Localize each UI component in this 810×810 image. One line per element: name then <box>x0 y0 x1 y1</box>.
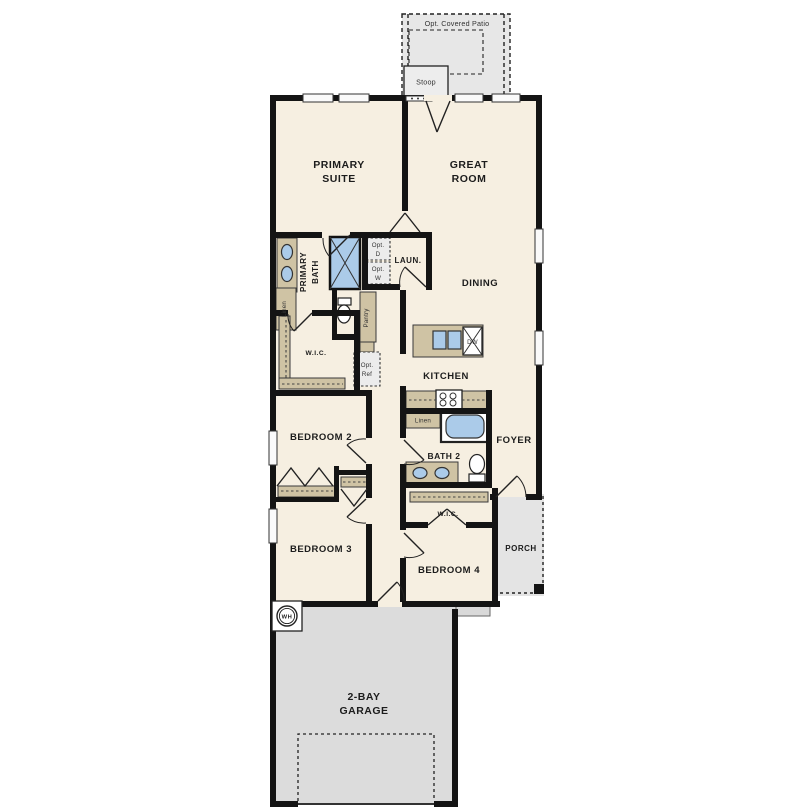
wall-suite-greatroom-divider <box>402 95 408 211</box>
sidelight-dot-2 <box>417 98 419 100</box>
wall-bath2-top <box>402 408 490 414</box>
wall-bath2-bottom <box>406 482 492 488</box>
garage-door-threshold <box>298 803 434 805</box>
bath2-label: BATH 2 <box>427 451 460 461</box>
floorplan-canvas: Opt. Covered Patio Stoop 2-BAY GARAGE PO… <box>0 0 810 810</box>
bedroom4-label: BEDROOM 4 <box>418 565 480 576</box>
primary-bath-sink-1 <box>282 245 293 260</box>
porch-post <box>534 584 544 594</box>
bathtub <box>446 415 484 438</box>
primary-bath-sink-2 <box>282 267 293 282</box>
wall-bed4-right <box>492 488 498 606</box>
foyer-label: FOYER <box>496 435 531 446</box>
great-room-label-line2: ROOM <box>452 173 487 185</box>
dining-label: DINING <box>462 278 498 289</box>
wall-wic4-bottom-b <box>466 522 492 528</box>
window-dining-2 <box>535 331 543 365</box>
wall-closet-stub <box>334 466 339 502</box>
wall-hall-right-low <box>400 558 406 602</box>
range <box>436 390 462 409</box>
primary-suite-label-line2: SUITE <box>322 173 355 185</box>
laundry-label: LAUN. <box>395 256 422 265</box>
window-dining-1 <box>535 229 543 263</box>
garage-label-line1: 2-BAY <box>347 691 380 703</box>
wall-bed2-right-b <box>366 464 372 498</box>
kitchen-label: KITCHEN <box>423 371 469 382</box>
wall-bed4-bottom <box>402 601 500 607</box>
wall-laundry-bottom <box>362 284 400 290</box>
pantry-label: Pantry <box>363 308 370 328</box>
wall-bed3-closet-top <box>339 470 372 475</box>
patio-label: Opt. Covered Patio <box>425 19 490 28</box>
wall-wic-top-b <box>312 310 354 316</box>
wall-foyer-bottom-a <box>490 494 496 500</box>
bedroom2-label: BEDROOM 2 <box>290 432 352 443</box>
rear-step <box>456 606 490 616</box>
kitchen-sink-1 <box>433 331 446 349</box>
bath2-sink-1 <box>413 468 427 479</box>
water-heater-label: WH <box>282 615 293 621</box>
wall-hall-right-mid <box>400 464 406 530</box>
dishwasher-label: DW <box>467 339 478 346</box>
wall-bed3-right <box>366 524 372 602</box>
pantry-connector <box>360 342 374 352</box>
opt-washer-label-line2: W <box>375 275 381 282</box>
linen-bath2-label: Linen <box>415 418 431 425</box>
wall-suite-bottom-a <box>270 232 322 238</box>
wall-foyer-bottom-b <box>526 494 542 500</box>
wic-bed4-label: W.I.C. <box>438 511 459 518</box>
garage-floor <box>273 603 458 803</box>
wall-closet-divider <box>270 497 338 502</box>
primary-bath-label-line1: PRIMARY <box>299 252 308 292</box>
wic-primary-label: W.I.C. <box>306 350 327 357</box>
porch-label: PORCH <box>505 544 536 553</box>
primary-bath-label-line2: BATH <box>311 260 320 284</box>
wall-foyer-left <box>486 390 492 488</box>
toilet1-tank <box>338 298 351 305</box>
wall-laundry-right <box>426 232 432 290</box>
sidelight-dot-1 <box>411 98 413 100</box>
linen-primary-label: Linen <box>281 301 288 317</box>
wall-laundry-left <box>362 232 368 290</box>
opt-dryer-label-line1: Opt. <box>372 242 385 249</box>
opt-ref-label-line2: Ref <box>362 371 372 378</box>
wall-kitchen-west-a <box>400 290 406 354</box>
wall-garage-right <box>452 609 458 807</box>
wall-wic4-bottom-a <box>402 522 428 528</box>
wall-garage-bottom-left <box>270 801 298 807</box>
opt-dryer-label-line2: D <box>376 251 381 258</box>
bath2-sink-2 <box>435 468 449 479</box>
window-suite-2 <box>339 94 369 102</box>
window-suite-1 <box>303 94 333 102</box>
wall-right <box>536 95 542 497</box>
primary-suite-label-line1: PRIMARY <box>313 159 365 171</box>
bedroom3-label: BEDROOM 3 <box>290 544 352 555</box>
opt-ref-label-line1: Opt. <box>361 362 374 369</box>
window-greatroom-1 <box>455 94 483 102</box>
stoop-label: Stoop <box>416 78 436 87</box>
window-bed2 <box>269 431 277 465</box>
wall-wic-right <box>354 310 360 396</box>
floorplan-svg: Opt. Covered Patio Stoop 2-BAY GARAGE PO… <box>0 0 810 810</box>
opt-washer-label-line1: Opt. <box>372 266 385 273</box>
entry-door-gap <box>424 95 452 101</box>
wall-garage-bottom-right <box>434 801 458 807</box>
window-greatroom-2 <box>492 94 520 102</box>
toilet2-tank <box>469 474 485 482</box>
great-room-label-line1: GREAT <box>450 159 489 171</box>
wall-bed2-right-a <box>366 390 372 438</box>
kitchen-sink-2 <box>448 331 461 349</box>
wic-primary-shelf-left <box>279 316 290 388</box>
wall-bed2-top <box>270 390 372 396</box>
toilet2-bowl <box>470 455 485 474</box>
garage-label-line2: GARAGE <box>339 705 388 717</box>
window-bed3 <box>269 509 277 543</box>
